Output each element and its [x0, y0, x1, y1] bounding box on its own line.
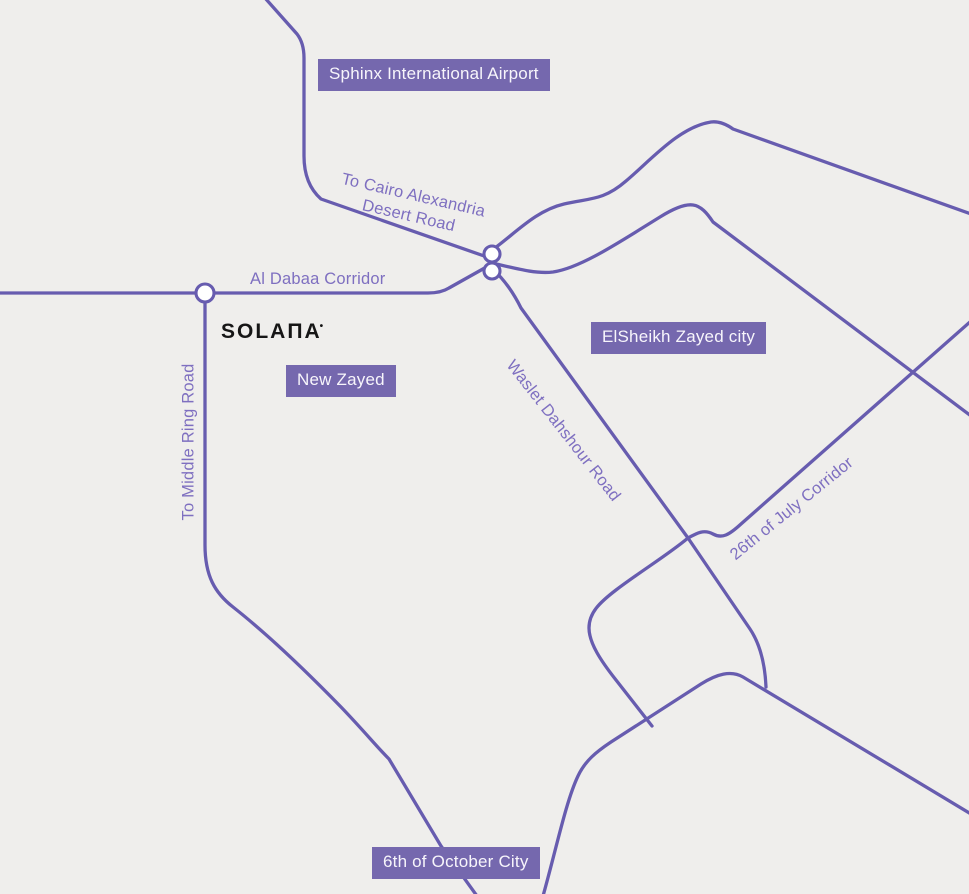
road-link-south — [589, 538, 688, 726]
solana-logo: SOLAΠA• — [221, 320, 323, 344]
label-sphinx-airport: Sphinx International Airport — [318, 59, 550, 91]
road-al-dabaa-corridor — [0, 265, 490, 293]
label-elsheikh-zayed-city: ElSheikh Zayed city — [591, 322, 766, 354]
interchange-node-icon — [196, 284, 214, 302]
label-6th-october-city: 6th of October City — [372, 847, 540, 879]
interchange-node-icon — [484, 263, 500, 279]
road-october-corridor — [543, 673, 969, 894]
label-middle-ring-road: To Middle Ring Road — [179, 364, 200, 521]
solana-logo-mark-icon: • — [320, 321, 324, 332]
solana-logo-text: SOLAΠA — [221, 320, 322, 343]
road-network — [0, 0, 969, 894]
interchange-node-icon — [484, 246, 500, 262]
label-new-zayed: New Zayed — [286, 365, 396, 397]
label-al-dabaa-corridor: Al Dabaa Corridor — [250, 269, 385, 290]
location-map: Sphinx International Airport To Cairo Al… — [0, 0, 969, 894]
